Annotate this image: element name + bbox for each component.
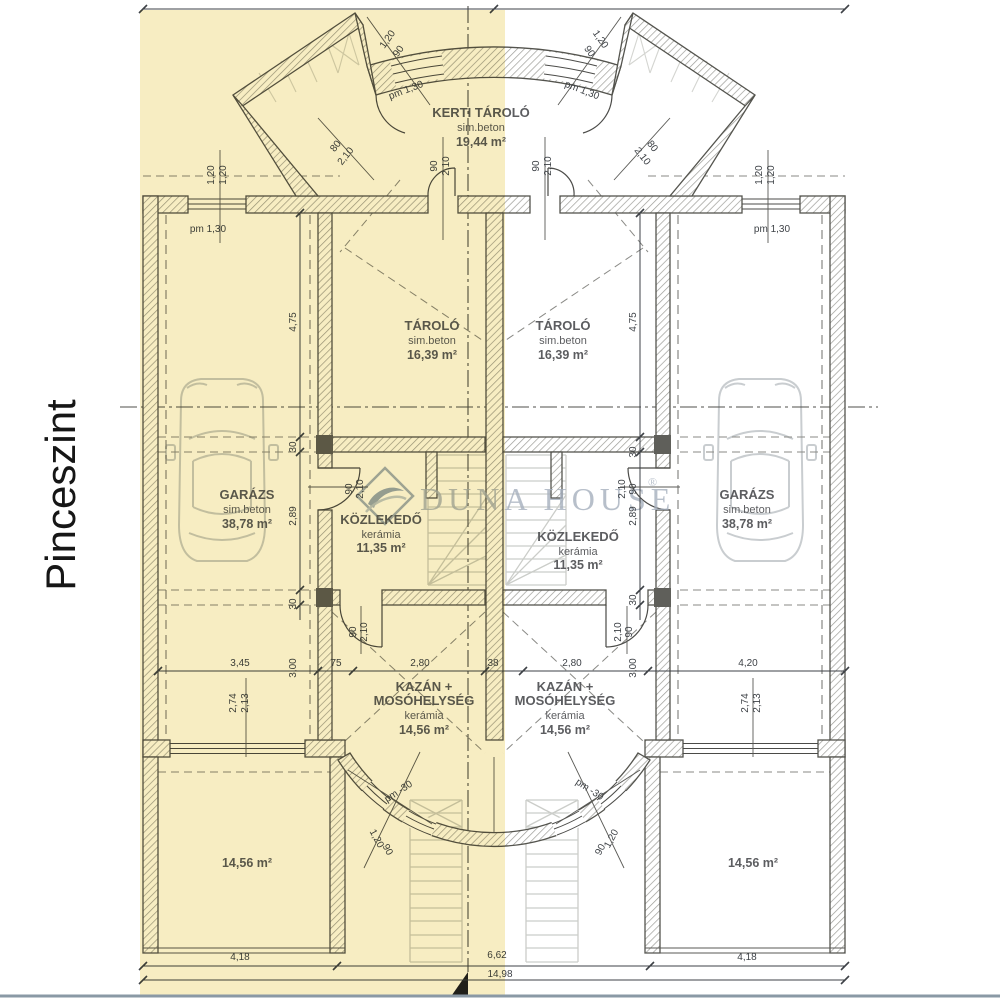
dimension-label: 3,00 — [628, 658, 639, 678]
dimension-label: 2,10 — [617, 479, 628, 499]
dimension-label: pm 1,30 — [754, 224, 791, 235]
room-label2-kazan-right: MOSÓHELYSÉG — [515, 693, 616, 708]
dimension-label: 1,20 — [766, 165, 777, 185]
room-label-garazs-right: GARÁZS — [720, 487, 775, 502]
room-area-kazan-right: 14,56 m² — [540, 723, 590, 737]
dimension-label: 2,74 — [740, 693, 751, 713]
highlight-overlay-left-unit — [140, 10, 505, 996]
dimension-label: 90 — [531, 160, 542, 172]
dimension-label: 90 — [624, 626, 635, 638]
dimension-label: 2,13 — [752, 693, 763, 713]
room-material-kozlekedo-right: kerámia — [558, 546, 598, 558]
room-area-kozlekedo-right: 11,35 m² — [553, 558, 602, 572]
dimension-label: 1,20 — [754, 165, 765, 185]
room-label-tarolo-right: TÁROLÓ — [536, 318, 591, 333]
dimension-label: 2,10 — [613, 622, 624, 642]
dimension-label: 4,18 — [737, 952, 757, 963]
dimension-label: 2,10 — [543, 156, 554, 176]
dimension-label: 30 — [628, 446, 639, 458]
room-area-bottom-right: 14,56 m² — [728, 856, 778, 870]
room-material-garazs-right: sim.beton — [723, 504, 771, 516]
dimension-label: 4,20 — [738, 658, 758, 669]
floor-level-title: Pinceszint — [37, 399, 84, 591]
dimension-label: 4,75 — [628, 312, 639, 332]
room-area-garazs-right: 38,78 m² — [722, 517, 772, 531]
room-label-kozlekedo-right: KÖZLEKEDŐ — [537, 529, 619, 544]
floorplan-document: DUNA HOUSE ® 4,186,624,1814 — [0, 0, 1000, 1000]
dimension-label: 2,89 — [628, 506, 639, 526]
floor-plan-svg: DUNA HOUSE ® 4,186,624,1814 — [0, 0, 1000, 1000]
room-material-kazan-right: kerámia — [545, 710, 585, 722]
room-area-tarolo-right: 16,39 m² — [538, 348, 588, 362]
dimension-label: 2,80 — [562, 658, 582, 669]
room-label-kazan-right: KAZÁN + — [537, 679, 594, 694]
dimension-label: 90 — [628, 483, 639, 495]
room-material-tarolo-right: sim.beton — [539, 335, 587, 347]
dimension-label: 30 — [628, 594, 639, 606]
